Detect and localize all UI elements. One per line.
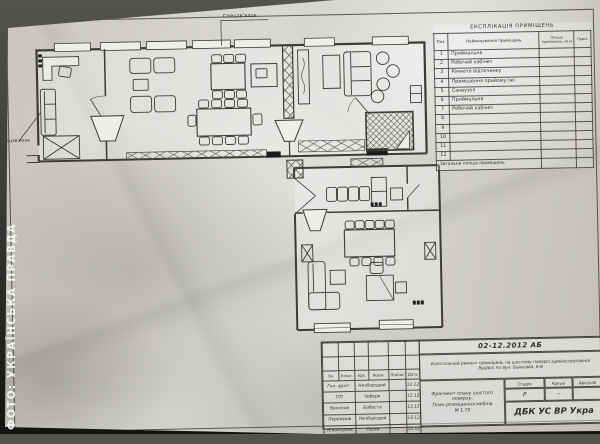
col-pos: Поз.: [434, 33, 449, 50]
title-block: Зм.Кільк.Арк. №док.ПідписДата Гол. архіт…: [321, 336, 600, 430]
lower-plan: [287, 157, 443, 333]
sheets-value: [573, 387, 600, 401]
junction-hatch: [287, 160, 303, 178]
signer-row: Н.контрольПалій12.12: [324, 424, 421, 437]
plan-label-spetszvyazok-left: Спецзв'язок: [0, 139, 30, 145]
top-plan: [16, 16, 427, 163]
drawing-title: Фрагмент плану шостого поверху.План розм…: [419, 379, 505, 427]
organization-name: ДБК УС ВР Укра: [505, 400, 600, 425]
title-block-signers: Зм.Кільк.Арк. №док.ПідписДата Гол. архіт…: [322, 341, 422, 438]
explication-table: ЕКСПЛІКАЦІЯ ПРИМІЩЕНЬ Поз. Найменування …: [433, 22, 594, 171]
sheet-label: Аркуш: [544, 377, 572, 388]
col-name: Найменування приміщень: [448, 31, 539, 50]
col-area: Площа приміщень, кв.м: [539, 31, 574, 49]
sheets-label: Аркушів: [572, 377, 600, 388]
project-description: Капітальний ремонт приміщень на шостому …: [419, 351, 600, 381]
photo-credit-watermark: ФОТО: УКРАЇНСЬКА ПРАВДА: [6, 218, 18, 430]
plan-label-spetszvyazok-top: Спецзв'язок: [223, 13, 257, 20]
drawing-sheet: Спецзв'язок Спецзв'язок ЕКСПЛІКАЦІЯ ПРИМ…: [0, 0, 600, 440]
col-note: Прим.: [574, 30, 591, 47]
paper-sheet: Спецзв'язок Спецзв'язок ЕКСПЛІКАЦІЯ ПРИМ…: [0, 0, 600, 434]
radiator-bench: [351, 158, 383, 167]
hatched-wall: [282, 45, 294, 118]
stage-value: Р: [505, 388, 545, 402]
sheet-value: –: [545, 387, 573, 401]
